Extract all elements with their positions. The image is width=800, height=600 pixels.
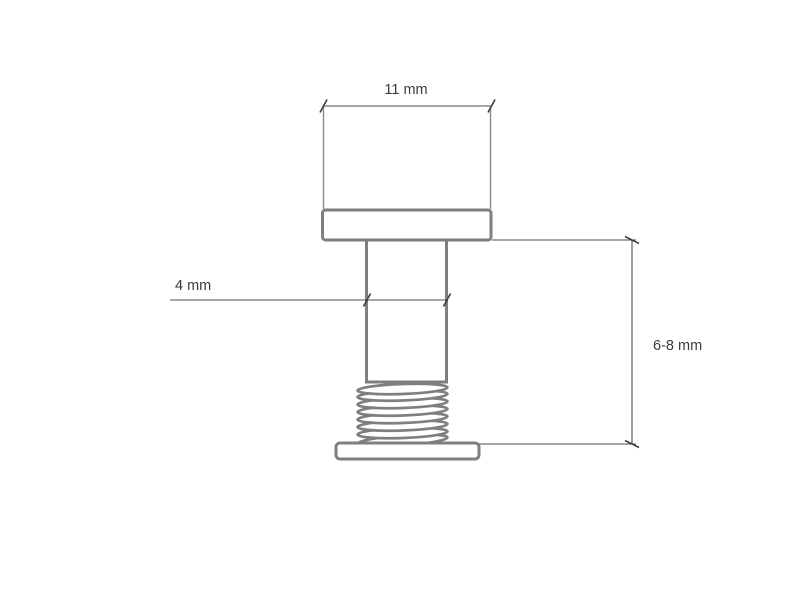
dimension-shaft-diameter: 4 mm	[170, 278, 451, 307]
dimension-post-length: 6-8 mm	[479, 237, 702, 448]
technical-drawing-canvas: 11 mm 4 mm 6-8 mm	[0, 0, 800, 600]
post-length-label: 6-8 mm	[653, 338, 702, 354]
head-width-label: 11 mm	[384, 82, 427, 98]
screw-shaft-outline	[367, 240, 447, 382]
screw-base-flange-outline	[336, 443, 479, 459]
shaft-diameter-label: 4 mm	[175, 278, 211, 294]
screw-thread-coil	[357, 382, 447, 448]
dimension-head-width: 11 mm	[320, 82, 495, 209]
screw-head-outline	[323, 210, 492, 240]
screw-part	[323, 210, 492, 459]
screw-dimension-drawing: 11 mm 4 mm 6-8 mm	[0, 0, 800, 600]
